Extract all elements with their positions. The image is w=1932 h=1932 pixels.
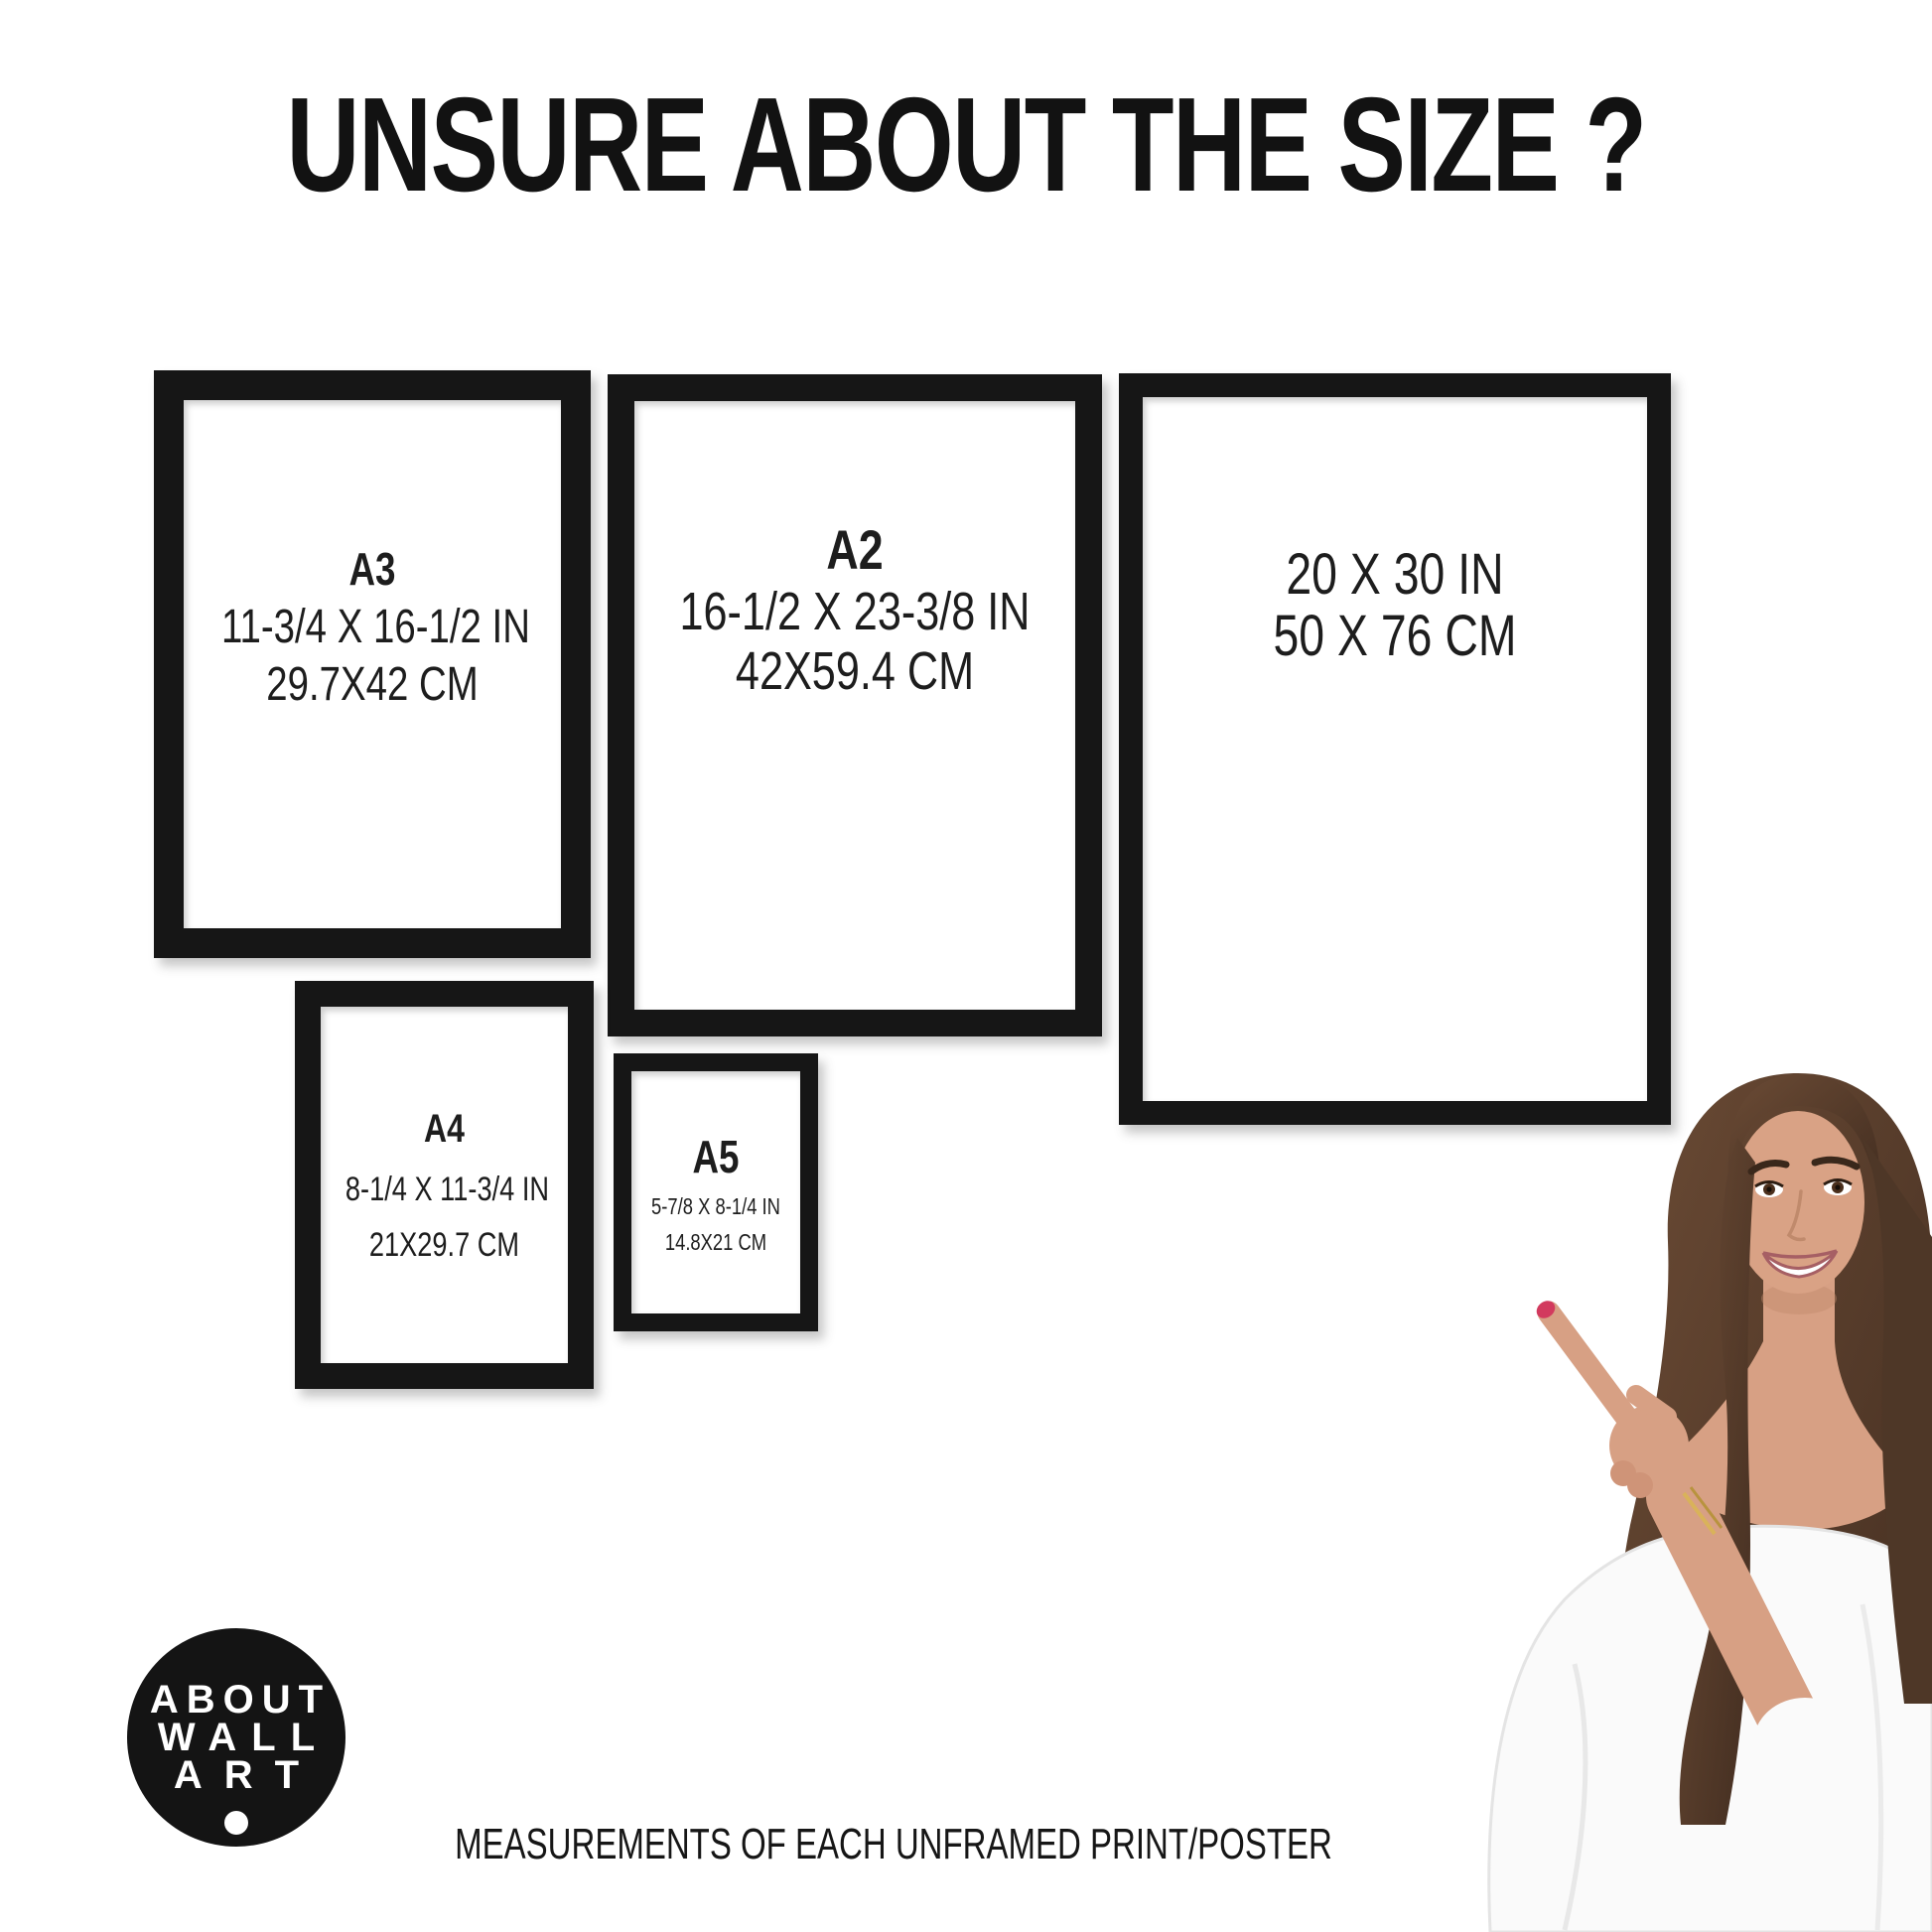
brand-logo: ABOUT WALL ART [127,1628,345,1847]
frame-a2-size-in: 16-1/2 X 23-3/8 IN [678,582,1031,641]
frame-a2-size-cm: 42X59.4 CM [678,641,1031,701]
index-finger [1549,1312,1640,1436]
page-title: UNSURE ABOUT THE SIZE ? [232,71,1701,219]
curled-finger [1627,1472,1653,1498]
frame-20x30-size-cm: 50 X 76 CM [1193,606,1596,667]
frame-20x30-text: 20 X 30 IN 50 X 76 CM [1143,397,1647,667]
frame-a5-size-in: 5-7/8 X 8-1/4 IN [648,1188,783,1224]
frame-a3-label: A3 [221,539,523,599]
frame-a2: A2 16-1/2 X 23-3/8 IN 42X59.4 CM [608,374,1102,1036]
logo-line-art: ART [152,1756,321,1794]
frame-a4: A4 8-1/4 X 11-3/4 IN 21X29.7 CM [295,981,594,1389]
frame-a4-size-in: 8-1/4 X 11-3/4 IN [345,1162,543,1217]
pupil-left [1766,1186,1771,1191]
frame-a4-size-cm: 21X29.7 CM [345,1217,543,1273]
frame-a3-size-cm: 29.7X42 CM [221,656,523,714]
frame-a3-size-in: 11-3/4 X 16-1/2 IN [221,599,523,656]
frame-a2-label: A2 [678,518,1031,582]
frame-a5-size-cm: 14.8X21 CM [648,1224,783,1260]
frame-20x30: 20 X 30 IN 50 X 76 CM [1119,373,1671,1125]
logo-line-wall: WALL [143,1719,330,1756]
frame-a5: A5 5-7/8 X 8-1/4 IN 14.8X21 CM [614,1053,818,1331]
frame-a5-text: A5 5-7/8 X 8-1/4 IN 14.8X21 CM [631,1071,800,1260]
frame-a5-label: A5 [648,1125,783,1188]
pupil-right [1835,1184,1840,1189]
woman-photo [1436,1048,1932,1932]
frame-a3: A3 11-3/4 X 16-1/2 IN 29.7X42 CM [154,370,591,958]
frame-a4-label: A4 [345,1096,543,1162]
sleeve-cuff [1753,1698,1857,1789]
frame-20x30-size-in: 20 X 30 IN [1193,544,1596,606]
logo-line-about: ABOUT [142,1681,331,1719]
frame-a4-text: A4 8-1/4 X 11-3/4 IN 21X29.7 CM [321,1007,568,1273]
footer-caption: MEASUREMENTS OF EACH UNFRAMED PRINT/POST… [223,1823,1564,1866]
size-guide-infographic: UNSURE ABOUT THE SIZE ? A3 11-3/4 X 16-1… [0,0,1932,1932]
frame-a2-text: A2 16-1/2 X 23-3/8 IN 42X59.4 CM [634,401,1075,701]
frame-a3-text: A3 11-3/4 X 16-1/2 IN 29.7X42 CM [184,400,561,714]
